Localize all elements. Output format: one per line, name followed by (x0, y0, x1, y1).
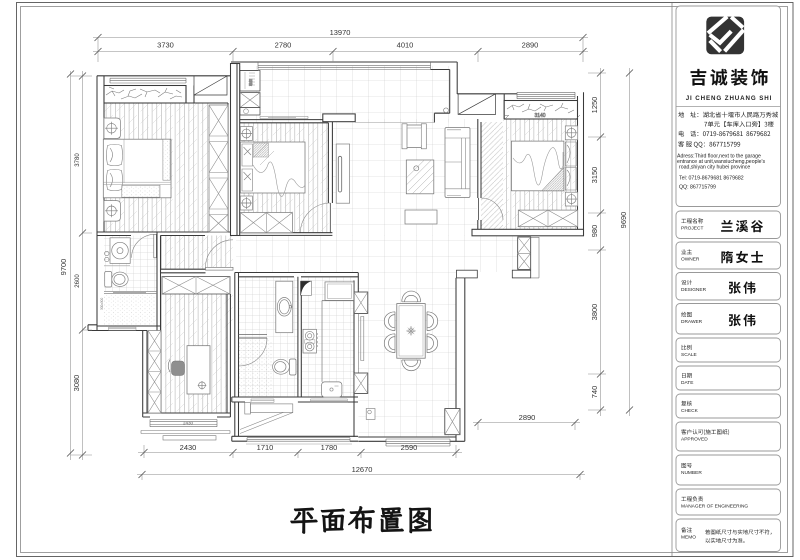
svg-text:13970: 13970 (330, 28, 351, 37)
svg-text:2890: 2890 (522, 41, 539, 50)
svg-text:QQ: 867715799: QQ: 867715799 (679, 185, 716, 191)
svg-text:JI CHENG ZHUANG SHI: JI CHENG ZHUANG SHI (686, 95, 773, 102)
svg-text:OWNER: OWNER (681, 257, 700, 263)
svg-text:road,shiyan city hubei provinc: road,shiyan city hubei province (679, 165, 750, 171)
svg-text:9690: 9690 (619, 212, 628, 229)
svg-text:2780: 2780 (275, 41, 292, 50)
svg-text:4010: 4010 (397, 41, 414, 50)
svg-text:3080: 3080 (72, 375, 81, 392)
svg-text:3800: 3800 (590, 304, 599, 321)
svg-text:PROJECT: PROJECT (681, 226, 703, 232)
svg-text:3150: 3150 (590, 167, 599, 184)
svg-text:2430: 2430 (180, 443, 197, 452)
svg-text:3140: 3140 (534, 113, 545, 119)
svg-text:1710: 1710 (257, 443, 274, 452)
svg-text:9700: 9700 (59, 259, 68, 276)
svg-text:MANAGER OF ENGINEERING: MANAGER OF ENGINEERING (681, 504, 748, 510)
svg-text:2590: 2590 (401, 443, 418, 452)
svg-text:740: 740 (590, 386, 599, 399)
svg-text:DATE: DATE (681, 380, 693, 386)
svg-text:2890: 2890 (519, 413, 536, 422)
svg-text:NUMBER: NUMBER (681, 470, 702, 476)
svg-text:DESIGNER: DESIGNER (681, 287, 707, 293)
svg-text:1780: 1780 (321, 443, 338, 452)
svg-text:SCALE: SCALE (681, 352, 697, 358)
svg-text:APPROVED: APPROVED (681, 437, 708, 443)
svg-text:12670: 12670 (352, 465, 373, 474)
svg-text:2430: 2430 (183, 421, 194, 426)
svg-text:980: 980 (590, 225, 599, 238)
svg-text:CHECK: CHECK (681, 408, 699, 414)
svg-text:3730: 3730 (157, 41, 174, 50)
svg-text:DRAWER: DRAWER (681, 319, 703, 325)
svg-text:3780: 3780 (75, 153, 81, 167)
svg-text:300x300: 300x300 (100, 298, 104, 310)
svg-text:MEMO: MEMO (681, 535, 696, 541)
svg-text:1250: 1250 (590, 97, 599, 114)
svg-text:2600: 2600 (75, 274, 81, 288)
svg-text:Tel: 0719-8679681 8679682: Tel: 0719-8679681 8679682 (679, 176, 744, 182)
